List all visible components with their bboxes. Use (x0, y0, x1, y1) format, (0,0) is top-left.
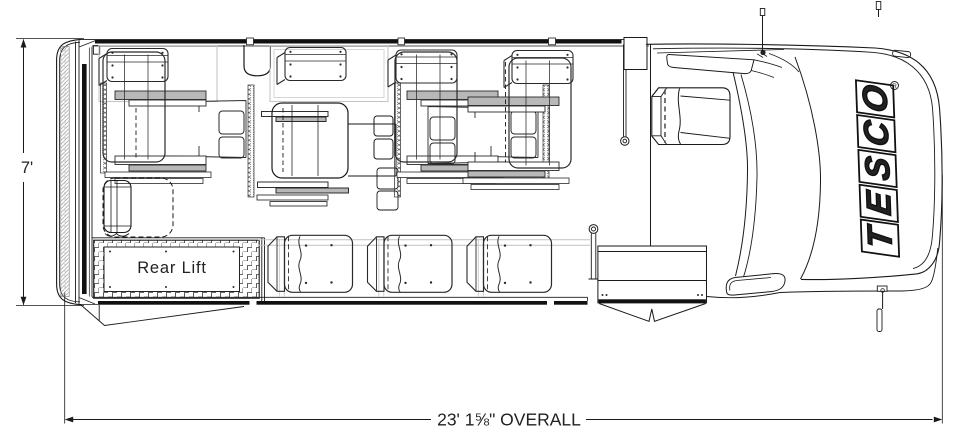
svg-text:R: R (892, 83, 897, 90)
svg-text:23' 1⅝" OVERALL: 23' 1⅝" OVERALL (437, 410, 581, 430)
svg-text:7': 7' (21, 159, 33, 177)
svg-text:Rear Lift: Rear Lift (137, 259, 207, 277)
